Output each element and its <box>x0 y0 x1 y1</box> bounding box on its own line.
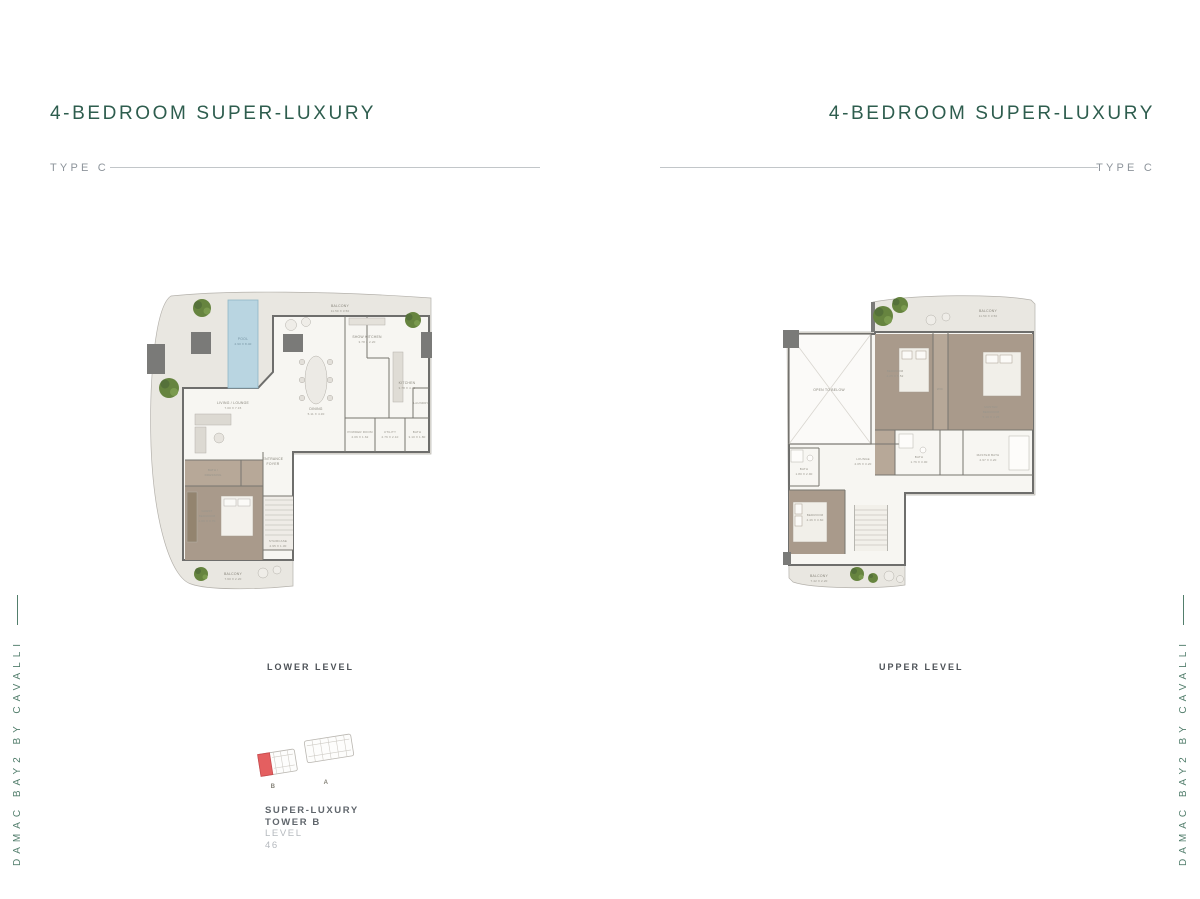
label-balcony-bottom: BALCONY <box>224 572 242 576</box>
label-show-kitchen: SHOW KITCHEN <box>352 335 382 339</box>
caption-upper-level: UPPER LEVEL <box>879 662 964 672</box>
label-master-bath-dims: 2.97 X 3.20 <box>980 458 997 462</box>
label-bath: BATH <box>413 430 421 434</box>
label-kitchen: KITCHEN <box>399 381 416 385</box>
keyplan-tower-b <box>258 749 298 777</box>
label-guest-bedroom-2: BEDROOM <box>199 514 216 518</box>
tower-info-line1: SUPER-LUXURY <box>265 805 359 817</box>
label-wing-bath-dims: 1.80 X 2.90 <box>796 472 813 476</box>
label-guest-bedroom: GUEST <box>201 509 212 513</box>
keyplan-tower-a <box>304 734 354 763</box>
label-open-to-below: OPEN TO BELOW <box>813 388 845 392</box>
brand-rule-left <box>17 595 18 625</box>
type-rule-right <box>660 167 1098 168</box>
brand-vertical-left: DAMAC BAY2 BY CAVALLI <box>6 526 28 866</box>
keyplan: B A <box>240 720 360 795</box>
label-foyer-2: FOYER <box>267 462 280 466</box>
brand-vertical-right: DAMAC BAY2 BY CAVALLI <box>1172 526 1194 866</box>
tower-info-level-value: 46 <box>265 840 359 852</box>
label-dressing-2: DRESSING <box>205 473 222 477</box>
label-master-bedroom-2: BEDROOM <box>983 410 1000 414</box>
type-label-right-text: TYPE C <box>1096 162 1155 174</box>
label-staircase: STAIRCASE <box>269 539 287 543</box>
label-foyer: ENTRANCE <box>263 457 284 461</box>
type-label-left: TYPE C <box>50 158 109 172</box>
label-upper-balcony-bottom: BALCONY <box>810 574 828 578</box>
floorplan-lower-level: POOL 2.90 X 8.40 BALCONY 11.50 X 3.50 SH… <box>145 288 437 595</box>
label-wing-bedroom: BEDROOM <box>807 513 824 517</box>
label-living-dims: 7.00 X 7.15 <box>225 406 242 410</box>
label-pool-dims: 2.90 X 8.40 <box>235 342 252 346</box>
label-wing-bedroom-dims: 4.46 X 3.60 <box>807 518 824 522</box>
label-master-bath: MASTER BATH <box>977 453 1000 457</box>
label-laundry: LAUNDRY <box>413 401 428 405</box>
brand-vertical-right-text: DAMAC BAY2 BY CAVALLI <box>1178 639 1189 866</box>
label-utility: UTILITY <box>384 430 396 434</box>
label-upper-balcony-top-dims: 11.50 X 3.50 <box>979 314 998 318</box>
caption-lower-level: LOWER LEVEL <box>267 662 354 672</box>
label-bath-dims: 3.10 X 1.80 <box>409 435 426 439</box>
label-dining: DINING <box>309 407 322 411</box>
label-staircase-dims: 2.95 X 1.30 <box>270 544 287 548</box>
tower-info-line2: TOWER B <box>265 817 359 829</box>
label-balcony-top-dims: 11.50 X 3.50 <box>331 309 350 313</box>
label-upper-balcony-top: BALCONY <box>979 309 997 313</box>
brand-rule-right <box>1183 595 1184 625</box>
keyplan-label-b: B <box>271 784 276 790</box>
type-rule-left <box>110 167 540 168</box>
label-powder-dims: 2.06 X 1.62 <box>352 435 369 439</box>
label-lounge: LOUNGE <box>856 457 870 461</box>
label-wic: WIC <box>937 387 944 391</box>
label-guest-bedroom-dims: 4.09 X 3.70 <box>199 519 216 523</box>
label-upper-bath: BATH <box>915 455 923 459</box>
label-lounge-dims: 2.05 X 3.20 <box>855 462 872 466</box>
label-dressing: BATH / <box>208 468 218 472</box>
label-kitchen-dims: 3.78 X 4.35 <box>399 386 416 390</box>
floorplan-upper-level: BALCONY 11.50 X 3.50 OPEN TO BELOW BEDRO… <box>783 290 1043 590</box>
brochure-page: 4-BEDROOM SUPER-LUXURY 4-BEDROOM SUPER-L… <box>0 0 1200 899</box>
label-utility-dims: 2.76 X 2.10 <box>382 435 399 439</box>
tower-info-level-label: LEVEL <box>265 828 359 840</box>
label-living: LIVING / LOUNGE <box>217 401 250 405</box>
type-label-left-text: TYPE C <box>50 162 109 174</box>
label-balcony-top: BALCONY <box>331 304 349 308</box>
label-show-kitchen-dims: 3.78 X 2.20 <box>359 340 376 344</box>
type-label-right: TYPE C <box>1096 158 1155 172</box>
page-title-left: 4-BEDROOM SUPER-LUXURY <box>50 103 376 125</box>
tower-info: SUPER-LUXURY TOWER B LEVEL 46 <box>265 805 359 851</box>
label-upper-bath-dims: 1.76 X 3.00 <box>911 460 928 464</box>
label-powder: POWDER ROOM <box>347 430 373 434</box>
label-master-bedroom: MASTER <box>984 405 998 409</box>
upper-staircase <box>855 505 887 551</box>
label-pool: POOL <box>238 337 248 341</box>
label-master-bedroom-dims: 5.10 X 4.25 <box>983 415 1000 419</box>
label-upper-balcony-bottom-dims: 7.42 X 2.20 <box>811 579 828 583</box>
keyplan-label-a: A <box>324 780 329 786</box>
page-title-right: 4-BEDROOM SUPER-LUXURY <box>829 103 1155 125</box>
label-wing-bath: BATH <box>800 467 808 471</box>
label-dining-dims: 5.11 X 4.30 <box>308 412 325 416</box>
label-upper-bedroom: BEDROOM <box>887 369 904 373</box>
label-balcony-bottom-dims: 7.60 X 2.20 <box>225 577 242 581</box>
label-upper-bedroom-dims: 4.25 X 5.52 <box>887 374 904 378</box>
brand-vertical-left-text: DAMAC BAY2 BY CAVALLI <box>12 639 23 866</box>
